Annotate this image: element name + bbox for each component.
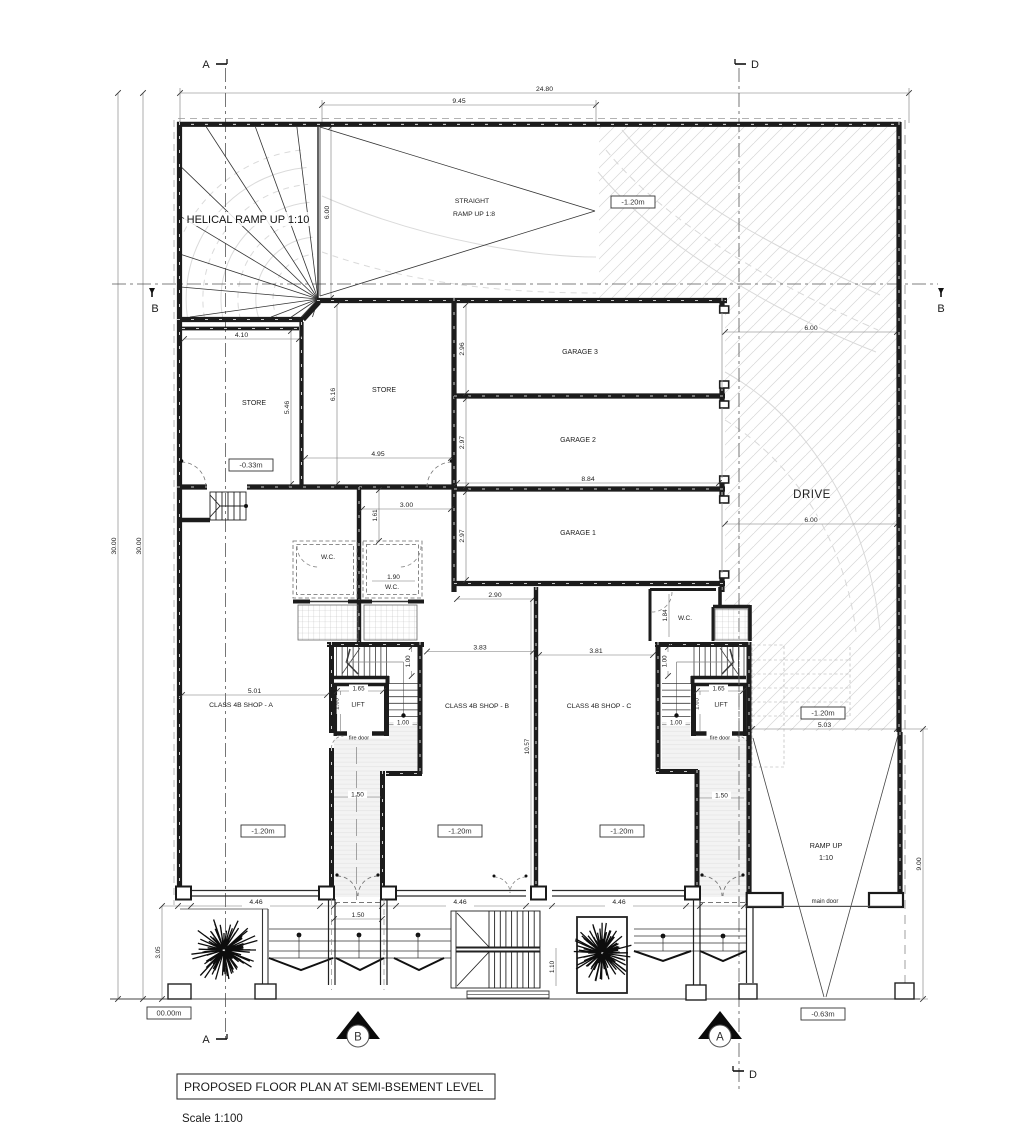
svg-text:B: B (151, 303, 158, 315)
svg-text:6.00: 6.00 (804, 325, 817, 332)
svg-text:-1.20m: -1.20m (610, 827, 633, 836)
svg-text:30.00: 30.00 (136, 537, 143, 554)
svg-text:1.65: 1.65 (352, 686, 365, 693)
svg-text:RAMP UP: RAMP UP (810, 841, 843, 850)
svg-text:2.96: 2.96 (459, 342, 466, 355)
svg-text:B: B (354, 1032, 362, 1044)
svg-text:1.90: 1.90 (387, 574, 400, 581)
svg-text:9.45: 9.45 (452, 98, 465, 105)
svg-text:LIFT: LIFT (714, 702, 727, 709)
svg-text:8.84: 8.84 (581, 476, 594, 483)
svg-text:6.00: 6.00 (324, 206, 331, 219)
svg-text:4.10: 4.10 (235, 332, 248, 339)
svg-text:5.01: 5.01 (248, 688, 261, 695)
svg-text:B: B (937, 303, 944, 315)
svg-text:2.97: 2.97 (459, 436, 466, 449)
svg-text:-0.63m: -0.63m (811, 1010, 834, 1019)
svg-text:STORE: STORE (372, 387, 396, 394)
svg-text:W.C.: W.C. (678, 615, 692, 622)
svg-text:3.83: 3.83 (473, 644, 486, 651)
svg-text:1.50: 1.50 (715, 793, 728, 800)
svg-text:D: D (749, 1069, 757, 1081)
svg-text:fire door: fire door (349, 736, 369, 742)
svg-text:3.00: 3.00 (400, 502, 413, 509)
svg-text:Scale 1:100: Scale 1:100 (182, 1113, 243, 1125)
svg-text:GARAGE 3: GARAGE 3 (562, 349, 598, 356)
svg-text:4.95: 4.95 (371, 451, 384, 458)
svg-text:00.00m: 00.00m (156, 1009, 181, 1018)
svg-text:24.80: 24.80 (536, 86, 553, 93)
svg-text:A: A (202, 1034, 210, 1046)
svg-text:STORE: STORE (242, 400, 266, 407)
svg-text:-1.20m: -1.20m (448, 827, 471, 836)
svg-text:1:10: 1:10 (819, 853, 833, 862)
svg-text:D: D (751, 59, 759, 71)
svg-text:RAMP UP 1:8: RAMP UP 1:8 (453, 211, 495, 218)
svg-text:STRAIGHT: STRAIGHT (455, 198, 489, 205)
svg-text:3.05: 3.05 (155, 946, 162, 959)
svg-text:A: A (716, 1032, 724, 1044)
svg-text:W.C.: W.C. (385, 584, 399, 591)
svg-text:1.50: 1.50 (351, 792, 364, 799)
svg-text:1.00: 1.00 (670, 719, 683, 726)
svg-text:CLASS 4B SHOP - A: CLASS 4B SHOP - A (209, 702, 273, 709)
svg-text:DRIVE: DRIVE (793, 489, 831, 501)
svg-text:GARAGE 1: GARAGE 1 (560, 530, 596, 537)
svg-text:4.46: 4.46 (249, 899, 262, 906)
svg-text:-1.20m: -1.20m (621, 198, 644, 207)
svg-text:1.65: 1.65 (334, 697, 341, 710)
svg-text:LIFT: LIFT (351, 702, 364, 709)
svg-text:4.46: 4.46 (612, 899, 625, 906)
svg-text:1.00: 1.00 (397, 719, 410, 726)
svg-text:30.00: 30.00 (111, 537, 118, 554)
svg-text:-1.20m: -1.20m (811, 709, 834, 718)
svg-text:HELICAL RAMP UP 1:10: HELICAL RAMP UP 1:10 (187, 214, 310, 226)
svg-text:2.90: 2.90 (488, 592, 501, 599)
svg-text:4.46: 4.46 (453, 899, 466, 906)
svg-text:-0.33m: -0.33m (239, 461, 262, 470)
svg-text:1.65: 1.65 (693, 697, 700, 710)
svg-text:1.61: 1.61 (372, 509, 379, 522)
svg-text:PROPOSED FLOOR PLAN AT SEMI-BS: PROPOSED FLOOR PLAN AT SEMI-BSEMENT LEVE… (184, 1080, 484, 1094)
svg-text:fire door: fire door (710, 736, 730, 742)
svg-text:6.16: 6.16 (330, 388, 337, 401)
svg-text:1.65: 1.65 (712, 686, 725, 693)
svg-text:CLASS 4B SHOP - B: CLASS 4B SHOP - B (445, 703, 510, 710)
svg-text:GARAGE 2: GARAGE 2 (560, 437, 596, 444)
svg-text:5.46: 5.46 (284, 401, 291, 414)
svg-text:5.03: 5.03 (818, 722, 831, 729)
svg-text:A: A (202, 59, 210, 71)
svg-text:main door: main door (812, 899, 839, 905)
svg-text:1.00: 1.00 (405, 655, 412, 668)
svg-text:-1.20m: -1.20m (251, 827, 274, 836)
svg-text:W.C.: W.C. (321, 554, 335, 561)
svg-text:2.97: 2.97 (459, 529, 466, 542)
svg-text:1.00: 1.00 (661, 655, 668, 668)
svg-text:10.57: 10.57 (524, 738, 531, 754)
svg-text:1.50: 1.50 (352, 912, 365, 919)
svg-text:3.81: 3.81 (589, 648, 602, 655)
svg-text:9.00: 9.00 (916, 857, 923, 870)
svg-text:6.00: 6.00 (804, 517, 817, 524)
svg-text:CLASS 4B SHOP - C: CLASS 4B SHOP - C (567, 703, 632, 710)
svg-text:1.84: 1.84 (662, 609, 669, 622)
svg-text:1.10: 1.10 (549, 960, 556, 973)
